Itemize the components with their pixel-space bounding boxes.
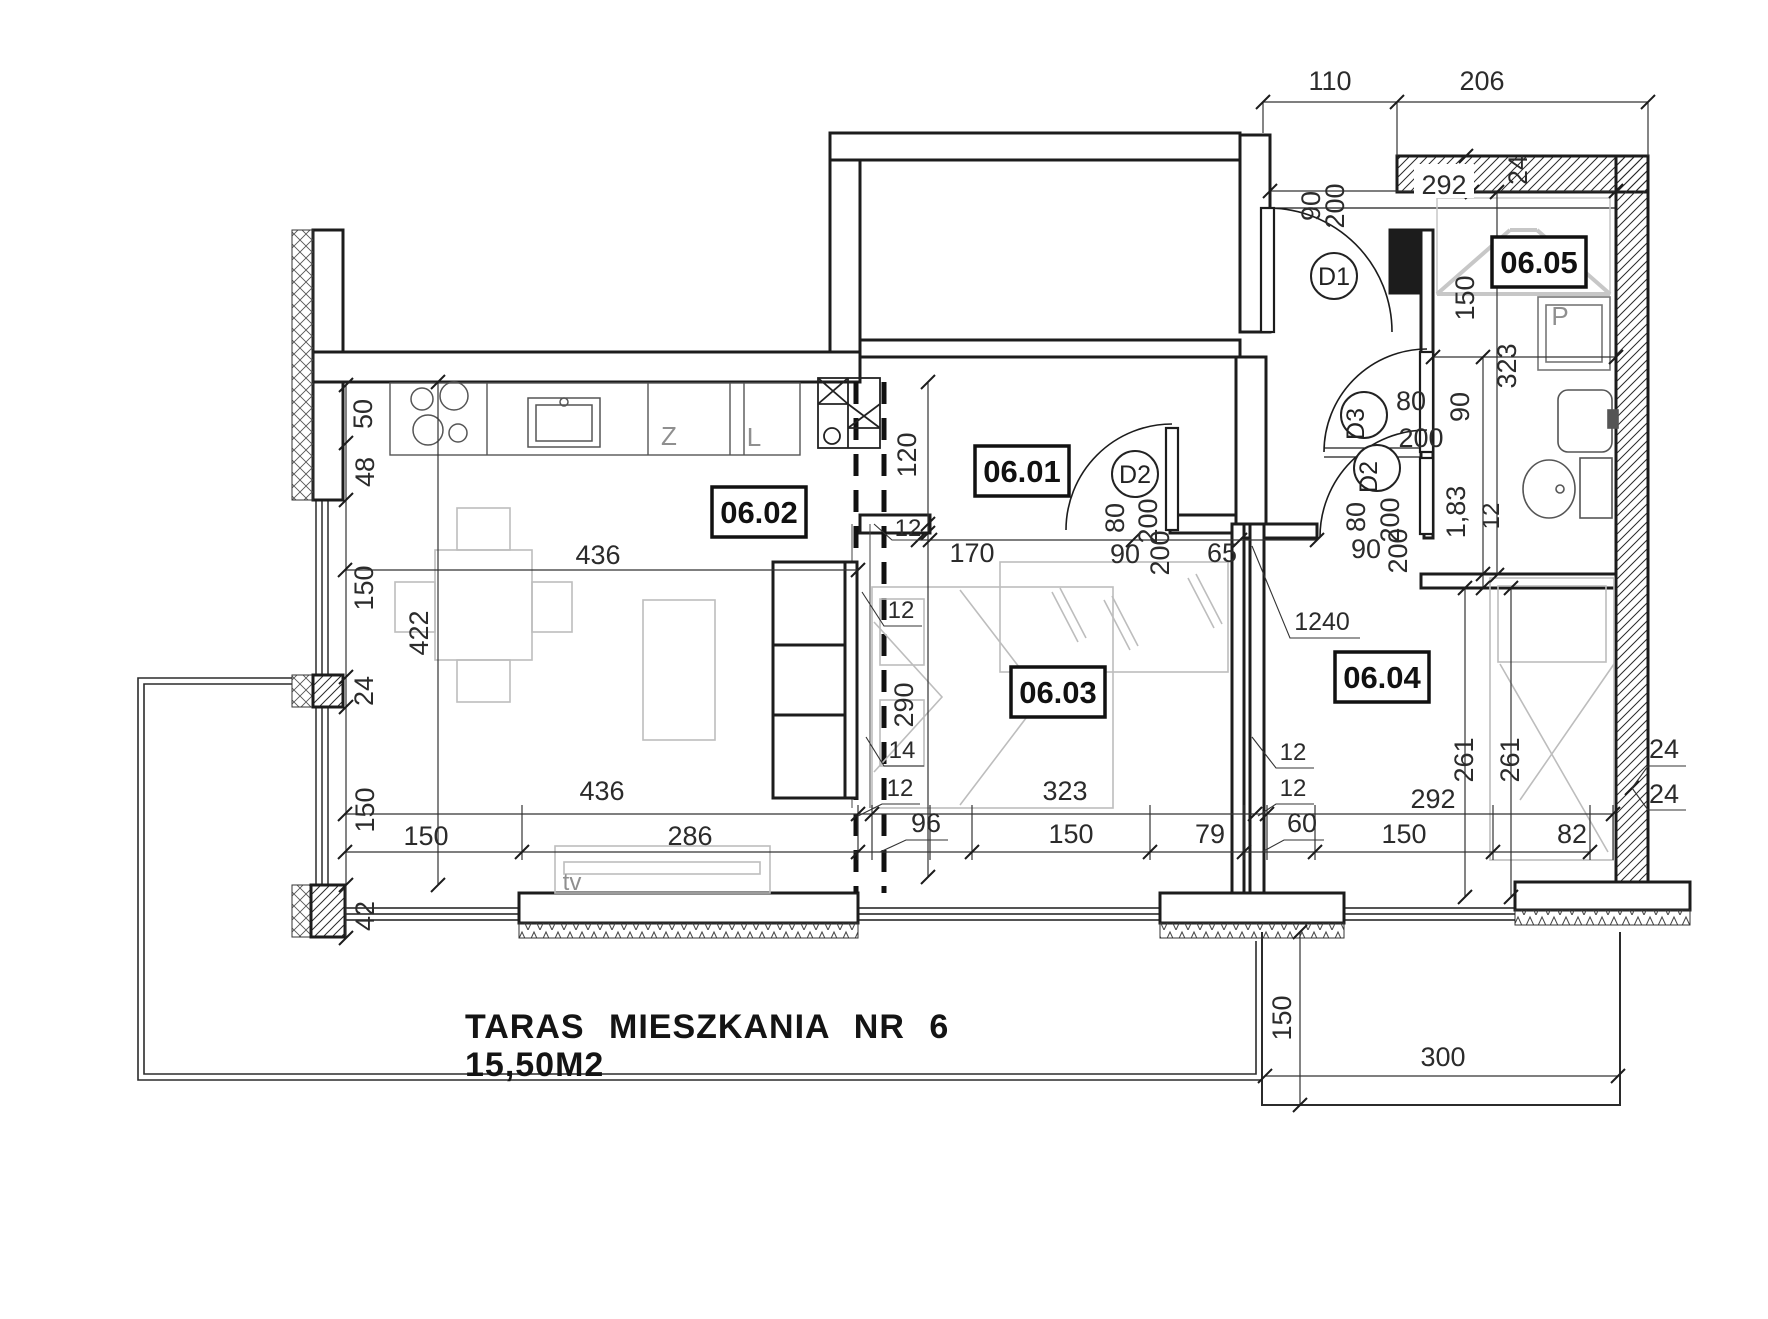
dim-label: 422 [404, 610, 434, 655]
room-label-text: 06.04 [1343, 660, 1421, 695]
dim-label: 150 [403, 821, 448, 851]
door-tag: D2 [1112, 451, 1158, 497]
dim-label: 12 [1280, 739, 1307, 766]
dim-label: 24 [1503, 155, 1533, 185]
dim-label: 80 [1396, 386, 1426, 416]
room-label: 06.04 [1335, 652, 1429, 702]
dim-label: 120 [892, 432, 922, 477]
toilet-icon [1523, 458, 1612, 518]
dim-label: 24 [1649, 734, 1679, 764]
dim-label: 300 [1420, 1042, 1465, 1072]
bed-06-04 [1490, 578, 1614, 860]
terrace-area: 15,50M2 [465, 1046, 604, 1084]
cooktop-icon [411, 382, 468, 445]
room-label: 06.05 [1492, 237, 1586, 287]
dimension-ticks [338, 95, 1655, 1112]
dim-label: 79 [1195, 819, 1225, 849]
dim-label: 150 [1267, 995, 1297, 1040]
dim-label: 12 [1478, 503, 1505, 530]
floorplan-sheet: 11020629224902001503231,8312802009012012… [0, 0, 1768, 1319]
floor-plan-canvas: 11020629224902001503231,8312802009012012… [0, 0, 1768, 1319]
dim-label: 286 [667, 821, 712, 851]
dim-label: 24 [1649, 779, 1679, 809]
dim-label: 200 [1320, 183, 1350, 228]
dim-label: 82 [1557, 819, 1587, 849]
dim-label: 50 [348, 399, 378, 429]
dim-label: 170 [949, 538, 994, 568]
dim-label: 90 [1110, 539, 1140, 569]
dim-label: 65 [1207, 538, 1237, 568]
terrace-title: TARAS MIESZKANIA NR 6 [465, 1008, 949, 1046]
coffee-table [643, 600, 715, 740]
dim-label: 292 [1421, 170, 1466, 200]
dim-label: 80 [1341, 502, 1371, 532]
room-label: 06.01 [975, 446, 1069, 496]
room-label: 06.02 [712, 487, 806, 537]
dim-label: 80 [1100, 503, 1130, 533]
kitchen-counter [390, 383, 800, 455]
dim-label: 12 [1280, 775, 1307, 802]
dim-label: 150 [1450, 275, 1480, 320]
dim-label: 90 [1445, 392, 1475, 422]
dim-label: 96 [911, 808, 941, 838]
dim-label: 200 [1383, 528, 1413, 573]
dim-label: 261 [1495, 737, 1525, 782]
dim-label: 261 [1449, 737, 1479, 782]
dim-label: 206 [1459, 66, 1504, 96]
room-label: 06.03 [1011, 667, 1105, 717]
dim-label: 14 [889, 737, 916, 764]
dim-label: 150 [350, 787, 380, 832]
dim-label: 42 [350, 901, 380, 931]
door-tag: D1 [1311, 253, 1357, 299]
door-tag-text: D2 [1119, 461, 1151, 489]
door-tag: D3 [1341, 392, 1387, 440]
sofa [773, 562, 857, 798]
door-tag-text: D2 [1355, 461, 1383, 493]
dim-label: 1240 [1294, 608, 1350, 636]
dim-label: 12 [887, 775, 914, 802]
door-tag-text: D3 [1342, 408, 1370, 440]
dim-label: 323 [1492, 343, 1522, 388]
room-label-text: 06.03 [1019, 675, 1097, 710]
furniture-label: tv [563, 869, 582, 896]
ventilation-shaft-icon [818, 378, 880, 448]
dim-label: 290 [889, 682, 919, 727]
furniture-label: P [1551, 301, 1568, 331]
dim-label: 12 [888, 597, 915, 624]
furniture-label: L [747, 422, 761, 452]
washing-machine-icon [1538, 297, 1610, 370]
door-tag: D2 [1354, 445, 1400, 493]
room-label-text: 06.02 [720, 495, 798, 530]
dim-label: 150 [1048, 819, 1093, 849]
dim-label: 292 [1410, 784, 1455, 814]
dim-label: 150 [1381, 819, 1426, 849]
dim-label: 150 [349, 565, 379, 610]
room-label-text: 06.01 [983, 454, 1061, 489]
bathroom-sink-icon [1558, 390, 1618, 452]
dining-table [395, 508, 572, 702]
dim-label: 200 [1145, 530, 1175, 575]
wardrobe-06-03 [1000, 562, 1228, 672]
balcony-outline [1262, 932, 1620, 1105]
dim-label: 90 [1351, 534, 1381, 564]
dim-label: 436 [575, 540, 620, 570]
kitchen-sink-icon [528, 398, 600, 447]
dimension-lines [345, 102, 1648, 1105]
door-tag-text: D1 [1318, 263, 1350, 291]
furniture-label: Z [661, 421, 677, 451]
dim-label: 323 [1042, 776, 1087, 806]
dim-label: 12 [895, 515, 922, 542]
dim-label: 24 [349, 676, 379, 706]
dim-label: 48 [350, 457, 380, 487]
dim-label: 1,83 [1441, 486, 1471, 539]
dim-label: 60 [1287, 808, 1317, 838]
tv-cabinet [555, 846, 770, 893]
dim-label: 436 [579, 776, 624, 806]
dim-label: 110 [1308, 66, 1351, 96]
dim-label: 200 [1398, 423, 1443, 453]
room-label-text: 06.05 [1500, 245, 1578, 280]
